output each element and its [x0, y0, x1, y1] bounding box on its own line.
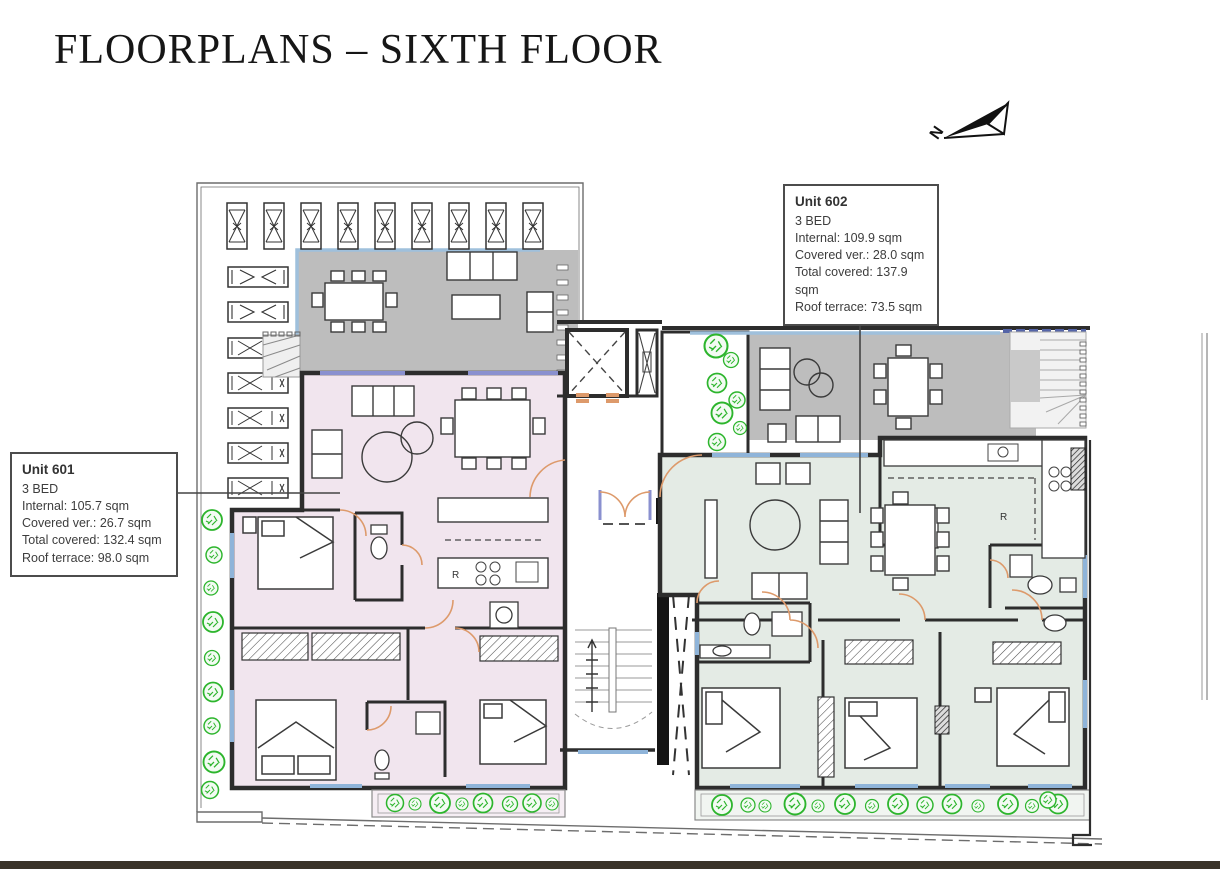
- core-stair: [575, 628, 652, 729]
- unit-602-plan: R: [660, 438, 1085, 788]
- unit-601-internal: Internal: 105.7 sqm: [22, 498, 166, 515]
- void-marker: [673, 595, 689, 775]
- unit-602-card: Unit 602 3 BED Internal: 109.9 sqm Cover…: [783, 184, 939, 326]
- footer-bar: [0, 861, 1220, 869]
- unit-602-covered: Covered ver.: 28.0 sqm: [795, 247, 927, 264]
- unit-601-plan: R: [232, 373, 565, 788]
- fridge-label-601: R: [452, 570, 459, 581]
- unit-601-terrace: Roof terrace: 98.0 sqm: [22, 550, 166, 567]
- fridge-label-602: R: [1000, 512, 1007, 523]
- terrace-stair-601: [263, 332, 300, 377]
- unit-601-beds: 3 BED: [22, 481, 166, 498]
- north-arrow: N: [927, 103, 1008, 143]
- unit-602-beds: 3 BED: [795, 213, 927, 230]
- unit-601-covered: Covered ver.: 26.7 sqm: [22, 515, 166, 532]
- unit-602-terrace: Roof terrace: 73.5 sqm: [795, 299, 927, 316]
- unit-602-internal: Internal: 109.9 sqm: [795, 230, 927, 247]
- unit-602-total: Total covered: 137.9 sqm: [795, 264, 927, 299]
- unit-601-total: Total covered: 132.4 sqm: [22, 532, 166, 549]
- unit-602-name: Unit 602: [795, 193, 927, 212]
- floorplan-drawing: R: [0, 0, 1220, 869]
- entrance-door: [600, 490, 650, 524]
- north-label: N: [927, 123, 948, 142]
- floorplan-page: FLOORPLANS – SIXTH FLOOR: [0, 0, 1220, 869]
- unit-601-name: Unit 601: [22, 461, 166, 480]
- terrace-stair-602: [1010, 332, 1086, 428]
- unit-601-card: Unit 601 3 BED Internal: 105.7 sqm Cover…: [10, 452, 178, 577]
